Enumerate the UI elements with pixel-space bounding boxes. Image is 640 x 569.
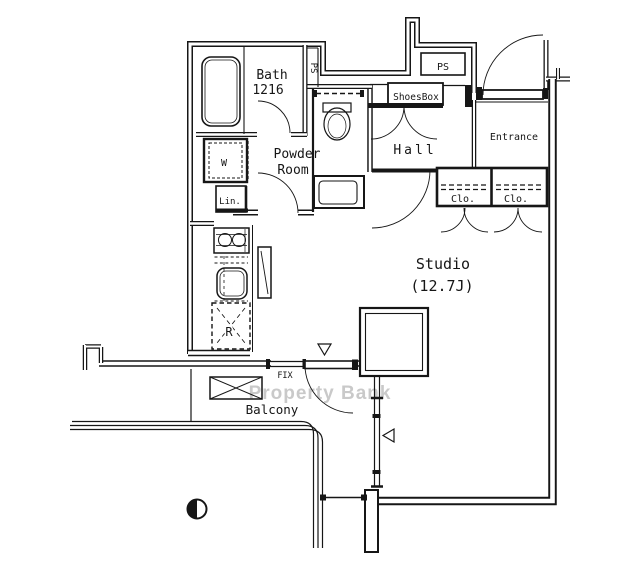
corner-pillar (360, 308, 428, 376)
vanity-sink (314, 176, 364, 209)
balcony-partition-bottom (320, 495, 367, 501)
bath-dimension: 1216 (252, 83, 283, 98)
bathtub (202, 57, 240, 126)
hall-door-arc (372, 170, 430, 228)
balcony-label: Balcony (246, 402, 299, 417)
washer-label: W (221, 158, 228, 169)
ps-shaft-bath-label: PS (308, 63, 318, 74)
fix-window-label: FIX (277, 371, 293, 381)
closet-door-arc-3 (494, 208, 518, 232)
closet-right-label: Clo. (504, 194, 528, 205)
floor-plan: Property Bank (0, 0, 640, 569)
studio-size-label: (12.7J) (410, 277, 473, 295)
fix-window (266, 359, 306, 369)
shoes-box-label: ShoesBox (393, 92, 439, 103)
refrigerator-label: R (225, 325, 233, 339)
bath-door-arc (258, 101, 290, 133)
toilet (313, 90, 364, 140)
balcony-door-leaf (305, 360, 358, 371)
watermark: Property Bank (249, 383, 392, 404)
shoesbox-door-arc-left (371, 106, 404, 139)
entrance-door-arc (483, 35, 543, 95)
vent-triangle-down (318, 344, 331, 355)
hall-label: Hall (393, 143, 436, 158)
powder-room-label-2: Room (277, 163, 308, 178)
studio-label: Studio (416, 255, 470, 273)
closet-door-arc-2 (464, 208, 488, 232)
entrance-door (476, 87, 548, 102)
bath-label: Bath (256, 68, 287, 83)
stove (214, 228, 249, 253)
linen-label: Lin. (219, 197, 241, 207)
entrance-label: Entrance (490, 132, 538, 143)
compass-icon (188, 500, 207, 519)
counter-board (258, 247, 271, 298)
shoesbox-door-arc-right (404, 106, 437, 139)
vent-triangle-left (383, 429, 394, 442)
powder-room-label-1: Powder (274, 147, 321, 162)
kitchen-sink (217, 268, 247, 299)
closet-door-arc-4 (518, 208, 542, 232)
powder-room-door-arc (258, 173, 298, 213)
ps-shaft-entry-label: PS (437, 62, 449, 73)
floor-plan-svg: Property Bank (0, 0, 640, 569)
closet-left-label: Clo. (451, 194, 475, 205)
balcony-railing (70, 422, 323, 549)
closet-door-arc-1 (441, 208, 465, 232)
